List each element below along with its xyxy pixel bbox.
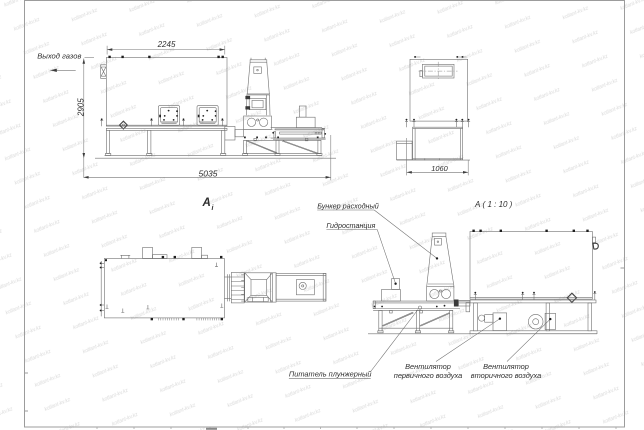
svg-text:вторичного воздуха: вторичного воздуха [471,371,541,380]
svg-text:А ( 1 : 10 ): А ( 1 : 10 ) [474,200,513,209]
svg-text:Бункер расходный: Бункер расходный [317,201,379,210]
svg-text:А: А [202,197,211,209]
svg-text:Выход газов: Выход газов [37,52,81,61]
svg-text:Питатель плунжерный: Питатель плунжерный [289,370,372,379]
svg-text:5035: 5035 [199,168,218,178]
svg-text:Вентилятор: Вентилятор [405,362,451,371]
svg-text:2905: 2905 [76,98,85,117]
svg-text:2245: 2245 [157,40,176,49]
svg-text:1060: 1060 [431,164,448,173]
svg-text:Гидростанция: Гидростанция [326,221,375,230]
svg-text:Вентилятор: Вентилятор [483,362,529,371]
svg-text:первичного воздуха: первичного воздуха [394,371,462,380]
